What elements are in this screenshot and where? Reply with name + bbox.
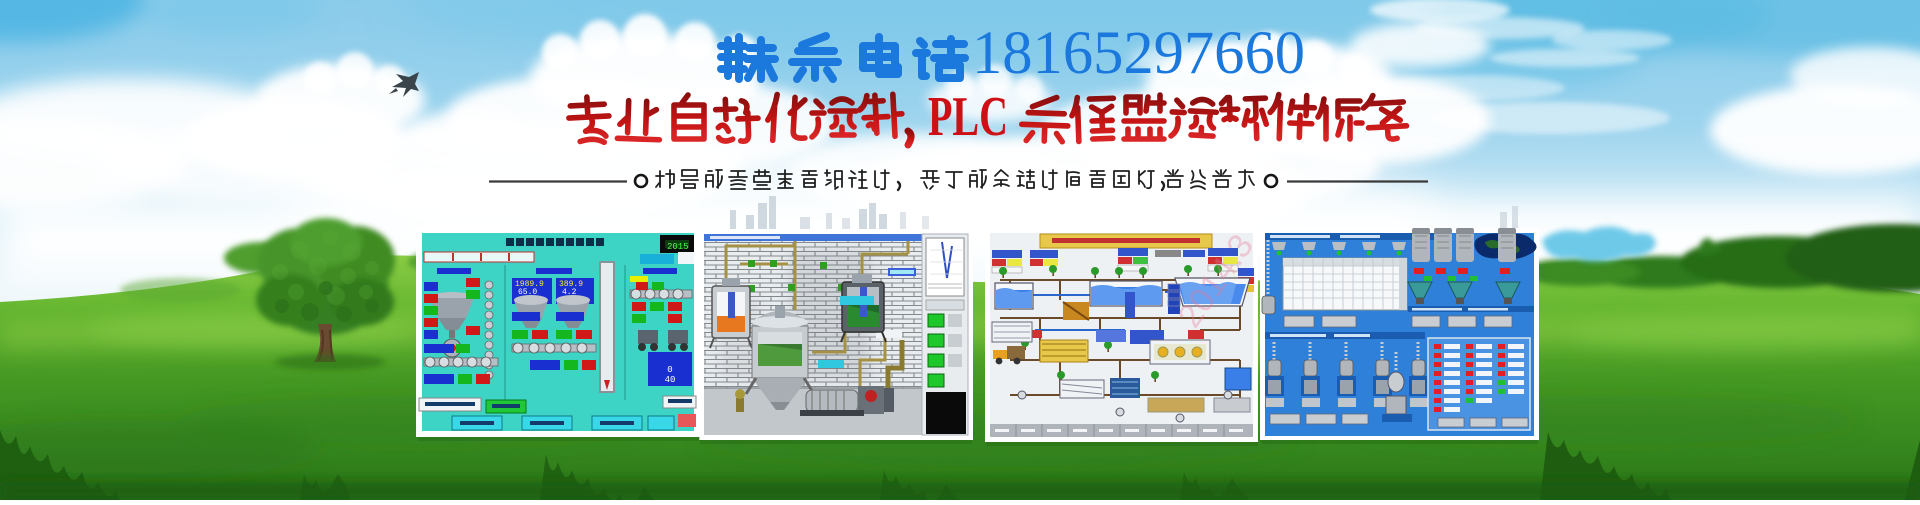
svg-text:18165297660: 18165297660 [972,20,1305,87]
svg-text:40: 40 [665,375,676,385]
svg-text:PLC: PLC [928,86,1008,148]
svg-text:0: 0 [667,365,672,375]
svg-text:2015: 2015 [667,242,689,252]
